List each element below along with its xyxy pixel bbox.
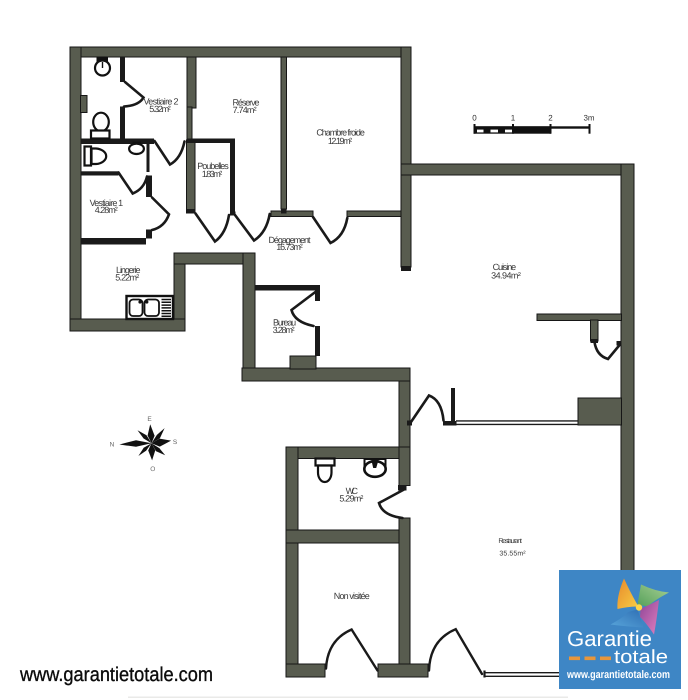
svg-text:16.73m²: 16.73m² <box>276 242 303 252</box>
svg-text:5.29m²: 5.29m² <box>339 494 363 504</box>
svg-text:34.94m²: 34.94m² <box>491 271 521 281</box>
svg-text:4.28m²: 4.28m² <box>95 205 118 215</box>
svg-text:www.garantietotale.com: www.garantietotale.com <box>19 664 213 686</box>
svg-text:5.32m²: 5.32m² <box>149 104 171 114</box>
svg-text:35.55m²: 35.55m² <box>499 550 526 557</box>
svg-text:1.83m²: 1.83m² <box>202 169 223 179</box>
svg-text:www.garantietotale.com: www.garantietotale.com <box>566 669 670 681</box>
svg-text:7.74m²: 7.74m² <box>233 105 257 115</box>
svg-text:Restaurant: Restaurant <box>498 538 522 545</box>
svg-text:2: 2 <box>548 114 553 123</box>
svg-text:totale: totale <box>614 647 668 668</box>
svg-text:Non visitée: Non visitée <box>334 591 370 601</box>
svg-text:1: 1 <box>511 114 516 123</box>
svg-text:E: E <box>147 416 152 423</box>
svg-text:5.22m²: 5.22m² <box>115 272 139 282</box>
svg-text:S: S <box>173 439 178 446</box>
svg-text:0: 0 <box>472 114 477 123</box>
svg-text:3.28m²: 3.28m² <box>273 325 295 335</box>
svg-text:3m: 3m <box>583 114 594 123</box>
svg-text:O: O <box>150 466 155 473</box>
svg-text:12.19m²: 12.19m² <box>328 136 352 146</box>
svg-text:N: N <box>110 442 115 449</box>
